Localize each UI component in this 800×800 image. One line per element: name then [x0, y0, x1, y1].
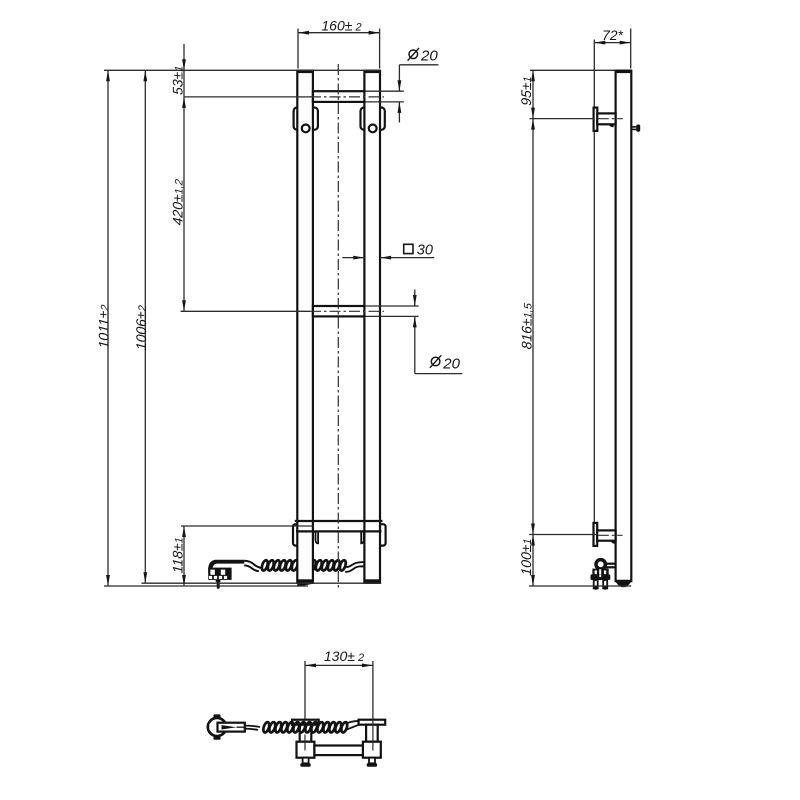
svg-text:1006±2: 1006±2 — [133, 305, 149, 351]
svg-text:72*: 72* — [602, 27, 624, 43]
svg-text:20: 20 — [442, 355, 460, 372]
svg-text:1011±2: 1011±2 — [96, 304, 112, 349]
svg-text:30: 30 — [417, 243, 433, 259]
svg-text:20: 20 — [420, 47, 438, 64]
